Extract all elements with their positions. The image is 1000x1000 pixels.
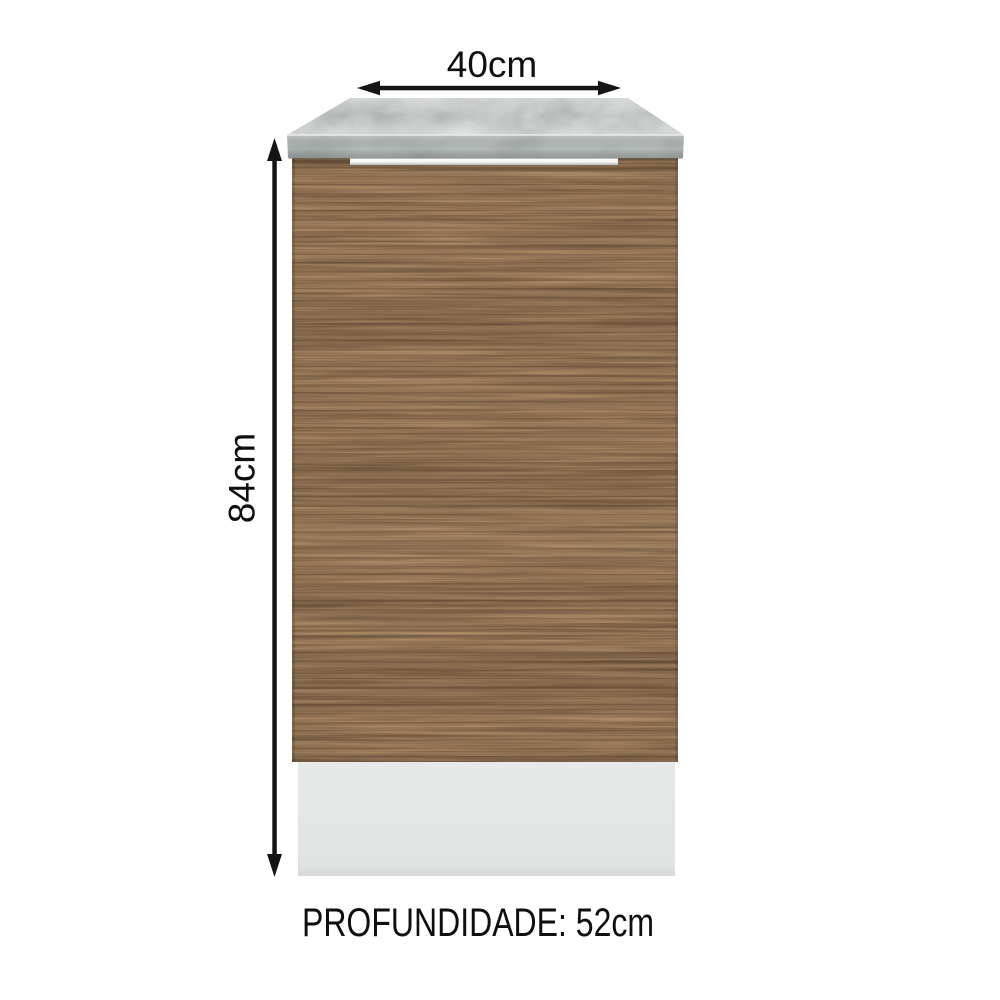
door-handle-strip	[350, 159, 618, 166]
product-dimension-diagram: 40cm 84cm PROFUNDIDADE: 52cm	[0, 0, 1000, 1000]
countertop-top-surface	[287, 98, 684, 135]
width-dimension-label: 40cm	[447, 46, 537, 83]
depth-dimension-label: PROFUNDIDADE: 52cm	[302, 903, 654, 943]
cabinet-plinth	[298, 762, 675, 876]
height-dimension-label: 84cm	[224, 433, 261, 523]
height-arrow	[267, 138, 282, 877]
countertop-front-edge	[287, 135, 684, 158]
cabinet-diagram-graphic	[0, 0, 1000, 1000]
cabinet-door	[292, 155, 678, 762]
